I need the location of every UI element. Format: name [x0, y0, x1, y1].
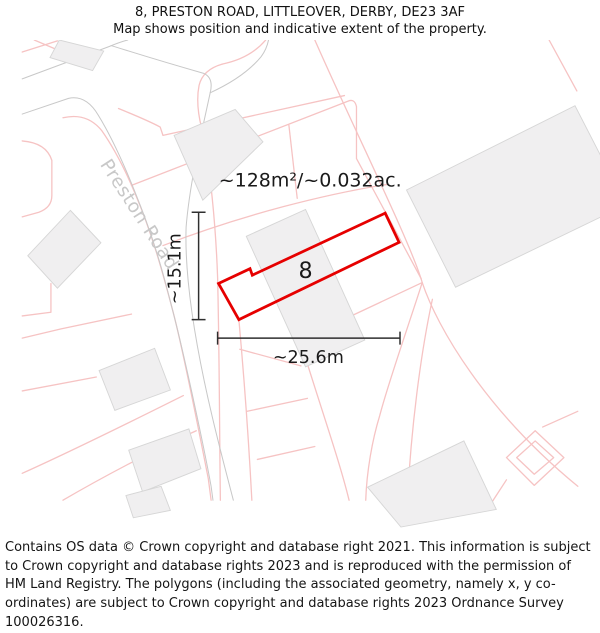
building: [129, 429, 201, 492]
parcel-line: [506, 431, 563, 486]
parcel-line: [493, 480, 507, 501]
page-subtitle: Map shows position and indicative extent…: [0, 20, 600, 37]
building: [406, 106, 600, 287]
parcel-line: [22, 141, 52, 217]
parcel-line: [247, 398, 307, 411]
plot-number-label: 8: [298, 258, 312, 284]
building: [126, 486, 170, 517]
page-title: 8, PRESTON ROAD, LITTLEOVER, DERBY, DE23…: [0, 0, 600, 20]
property-map: Preston Road ~128m²/~0.032ac. 8 ~15.1m ~…: [0, 40, 600, 540]
area-label: ~128m²/~0.032ac.: [219, 169, 402, 191]
parcel-line: [549, 40, 577, 91]
parcel-line: [257, 446, 314, 459]
parcel-line: [543, 411, 578, 427]
height-dimension-label: ~15.1m: [166, 233, 186, 304]
title-bar: 8, PRESTON ROAD, LITTLEOVER, DERBY, DE23…: [0, 0, 600, 40]
width-dimension-label: ~25.6m: [273, 348, 344, 368]
parcel-line: [222, 40, 266, 64]
building: [28, 210, 101, 288]
parcel-line: [22, 377, 96, 391]
building: [368, 441, 497, 527]
parcel-line: [517, 441, 554, 474]
parcel-line: [22, 284, 51, 316]
height-dimension-line: [192, 212, 206, 319]
road-edge: [210, 40, 268, 93]
parcel-line: [22, 314, 131, 338]
copyright-notice: Contains OS data © Crown copyright and d…: [0, 535, 600, 629]
building: [99, 348, 170, 410]
